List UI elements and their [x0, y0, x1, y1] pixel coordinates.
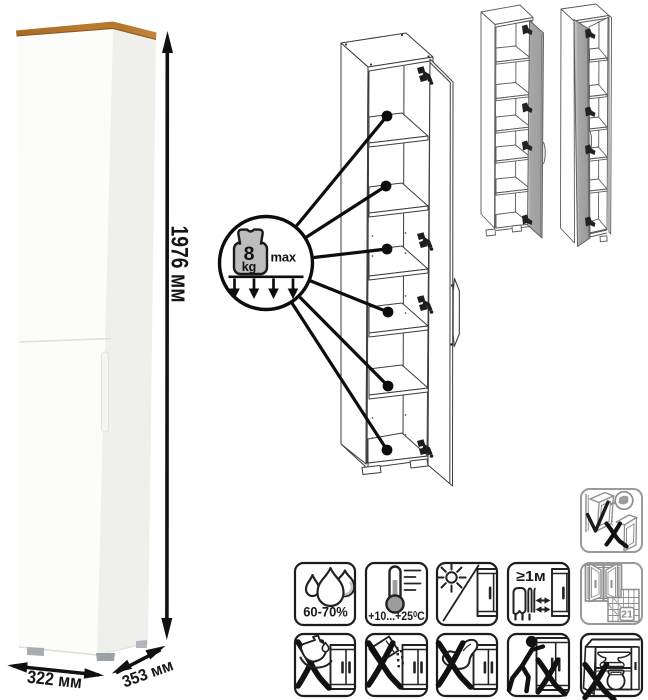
svg-text:kg: kg [242, 260, 257, 274]
svg-text:353 мм: 353 мм [120, 656, 176, 691]
svg-text:≥1м: ≥1м [516, 569, 546, 585]
svg-text:322 мм: 322 мм [26, 667, 83, 693]
svg-text:1976 мм: 1976 мм [166, 226, 193, 303]
svg-text:60-70%: 60-70% [303, 604, 348, 620]
svg-text:+10...+250C: +10...+250C [368, 609, 425, 623]
svg-text:max: max [271, 250, 297, 265]
svg-text:21: 21 [621, 609, 633, 621]
